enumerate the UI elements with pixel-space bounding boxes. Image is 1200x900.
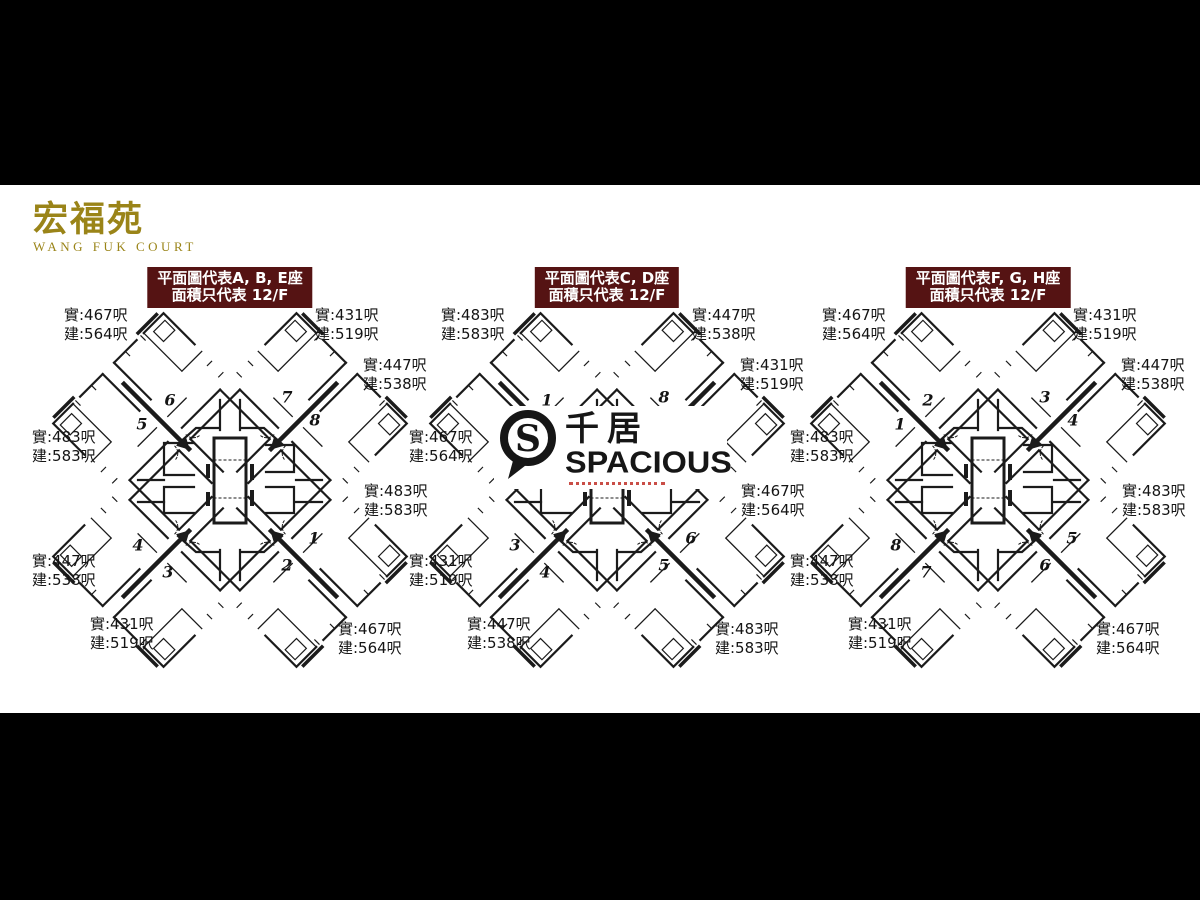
unit-number-se-outer: 6 (685, 529, 696, 548)
gross-area-text: 建:564呎 (64, 325, 128, 344)
gross-area-text: 建:583呎 (715, 639, 779, 658)
unit-number-ne-inner: 7 (281, 388, 292, 407)
gross-area-text: 建:519呎 (315, 325, 379, 344)
unit-number-ne-inner: 8 (658, 388, 669, 407)
area-label-br: 實:483呎建:583呎 (715, 620, 779, 658)
unit-number-nw-inner: 6 (164, 391, 175, 410)
saleable-area-text: 實:483呎 (32, 428, 96, 447)
gross-area-text: 建:519呎 (740, 375, 804, 394)
saleable-area-text: 實:447呎 (790, 552, 854, 571)
watermark-fine-print-illegible (569, 482, 665, 485)
plan-header-line1: 平面圖代表A, B, E座 (157, 270, 302, 287)
saleable-area-text: 實:467呎 (64, 306, 128, 325)
gross-area-text: 建:538呎 (467, 634, 531, 653)
estate-logo: 宏福苑 WANG FUK COURT (33, 201, 197, 254)
area-label-lu: 實:467呎建:564呎 (409, 428, 473, 466)
unit-number-ne-outer: 4 (1067, 411, 1078, 430)
floorplan-block: 平面圖代表A, B, E座 面積只代表 12/F 65784321實:467呎建… (40, 268, 420, 672)
saleable-area-text: 實:467呎 (822, 306, 886, 325)
saleable-area-text: 實:431呎 (90, 615, 154, 634)
saleable-area-text: 實:431呎 (409, 552, 473, 571)
gross-area-text: 建:538呎 (692, 325, 756, 344)
unit-number-sw-outer: 8 (890, 536, 901, 555)
gross-area-text: 建:519呎 (90, 634, 154, 653)
saleable-area-text: 實:483呎 (715, 620, 779, 639)
area-label-tl: 實:467呎建:564呎 (64, 306, 128, 344)
saleable-area-text: 實:467呎 (1096, 620, 1160, 639)
area-label-ll: 實:431呎建:519呎 (409, 552, 473, 590)
bottom-letterbox (0, 713, 1200, 900)
saleable-area-text: 實:431呎 (315, 306, 379, 325)
saleable-area-text: 實:447呎 (692, 306, 756, 325)
area-label-bl: 實:431呎建:519呎 (90, 615, 154, 653)
area-label-ru: 實:431呎建:519呎 (740, 356, 804, 394)
spacious-badge-letter: S (515, 418, 541, 460)
floorplan-block: 平面圖代表F, G, H座 面積只代表 12/F 21348765實:467呎建… (798, 268, 1178, 672)
gross-area-text: 建:564呎 (338, 639, 402, 658)
saleable-area-text: 實:483呎 (790, 428, 854, 447)
floorplan-sheet: 宏福苑 WANG FUK COURT 平面圖代表A, B, E座 面積只代表 1… (0, 185, 1200, 713)
gross-area-text: 建:564呎 (741, 501, 805, 520)
gross-area-text: 建:519呎 (848, 634, 912, 653)
saleable-area-text: 實:447呎 (32, 552, 96, 571)
watermark-chinese-name: 千居 (565, 411, 719, 447)
area-label-tr: 實:447呎建:538呎 (692, 306, 756, 344)
gross-area-text: 建:564呎 (409, 447, 473, 466)
gross-area-text: 建:583呎 (32, 447, 96, 466)
unit-number-se-outer: 5 (1066, 529, 1077, 548)
area-label-rl: 實:483呎建:583呎 (1122, 482, 1186, 520)
spacious-watermark: S 千居 SPACIOUS (494, 406, 727, 489)
area-label-tl: 實:483呎建:583呎 (441, 306, 505, 344)
saleable-area-text: 實:483呎 (1122, 482, 1186, 501)
unit-number-se-inner: 2 (281, 556, 292, 575)
gross-area-text: 建:564呎 (822, 325, 886, 344)
unit-number-ne-inner: 3 (1039, 388, 1050, 407)
saleable-area-text: 實:467呎 (741, 482, 805, 501)
saleable-area-text: 實:467呎 (409, 428, 473, 447)
unit-number-sw-outer: 3 (509, 536, 520, 555)
saleable-area-text: 實:483呎 (441, 306, 505, 325)
unit-number-se-inner: 5 (658, 556, 669, 575)
saleable-area-text: 實:431呎 (848, 615, 912, 634)
unit-number-sw-outer: 4 (132, 536, 143, 555)
gross-area-text: 建:538呎 (790, 571, 854, 590)
gross-area-text: 建:519呎 (1073, 325, 1137, 344)
area-label-rl: 實:467呎建:564呎 (741, 482, 805, 520)
estate-name-chinese: 宏福苑 (33, 201, 197, 238)
estate-name-english: WANG FUK COURT (33, 240, 197, 254)
saleable-area-text: 實:467呎 (338, 620, 402, 639)
area-label-ru: 實:447呎建:538呎 (1121, 356, 1185, 394)
area-label-tr: 實:431呎建:519呎 (1073, 306, 1137, 344)
unit-number-se-inner: 6 (1039, 556, 1050, 575)
area-label-ll: 實:447呎建:538呎 (790, 552, 854, 590)
saleable-area-text: 實:431呎 (740, 356, 804, 375)
area-label-bl: 實:447呎建:538呎 (467, 615, 531, 653)
saleable-area-text: 實:447呎 (467, 615, 531, 634)
unit-number-nw-outer: 1 (894, 415, 905, 434)
watermark-text: 千居 SPACIOUS (565, 411, 719, 485)
spacious-logo-icon: S (498, 409, 560, 483)
saleable-area-text: 實:431呎 (1073, 306, 1137, 325)
gross-area-text: 建:519呎 (409, 571, 473, 590)
gross-area-text: 建:583呎 (790, 447, 854, 466)
area-label-br: 實:467呎建:564呎 (338, 620, 402, 658)
gross-area-text: 建:583呎 (1122, 501, 1186, 520)
unit-number-ne-outer: 8 (309, 411, 320, 430)
screenshot-root: 宏福苑 WANG FUK COURT 平面圖代表A, B, E座 面積只代表 1… (0, 0, 1200, 900)
unit-number-nw-inner: 2 (922, 391, 933, 410)
unit-number-se-outer: 1 (308, 529, 319, 548)
top-letterbox (0, 0, 1200, 185)
watermark-english-name: SPACIOUS (565, 447, 732, 480)
plan-header-line1: 平面圖代表F, G, H座 (916, 270, 1061, 287)
unit-number-sw-inner: 4 (539, 563, 550, 582)
gross-area-text: 建:538呎 (32, 571, 96, 590)
area-label-tl: 實:467呎建:564呎 (822, 306, 886, 344)
area-label-br: 實:467呎建:564呎 (1096, 620, 1160, 658)
area-label-lu: 實:483呎建:583呎 (32, 428, 96, 466)
area-label-bl: 實:431呎建:519呎 (848, 615, 912, 653)
gross-area-text: 建:564呎 (1096, 639, 1160, 658)
area-label-lu: 實:483呎建:583呎 (790, 428, 854, 466)
saleable-area-text: 實:447呎 (1121, 356, 1185, 375)
gross-area-text: 建:583呎 (441, 325, 505, 344)
unit-number-sw-inner: 7 (920, 563, 931, 582)
unit-number-sw-inner: 3 (162, 563, 173, 582)
gross-area-text: 建:538呎 (1121, 375, 1185, 394)
plan-header-line1: 平面圖代表C, D座 (545, 270, 669, 287)
area-label-ll: 實:447呎建:538呎 (32, 552, 96, 590)
unit-number-nw-outer: 5 (136, 415, 147, 434)
area-label-tr: 實:431呎建:519呎 (315, 306, 379, 344)
